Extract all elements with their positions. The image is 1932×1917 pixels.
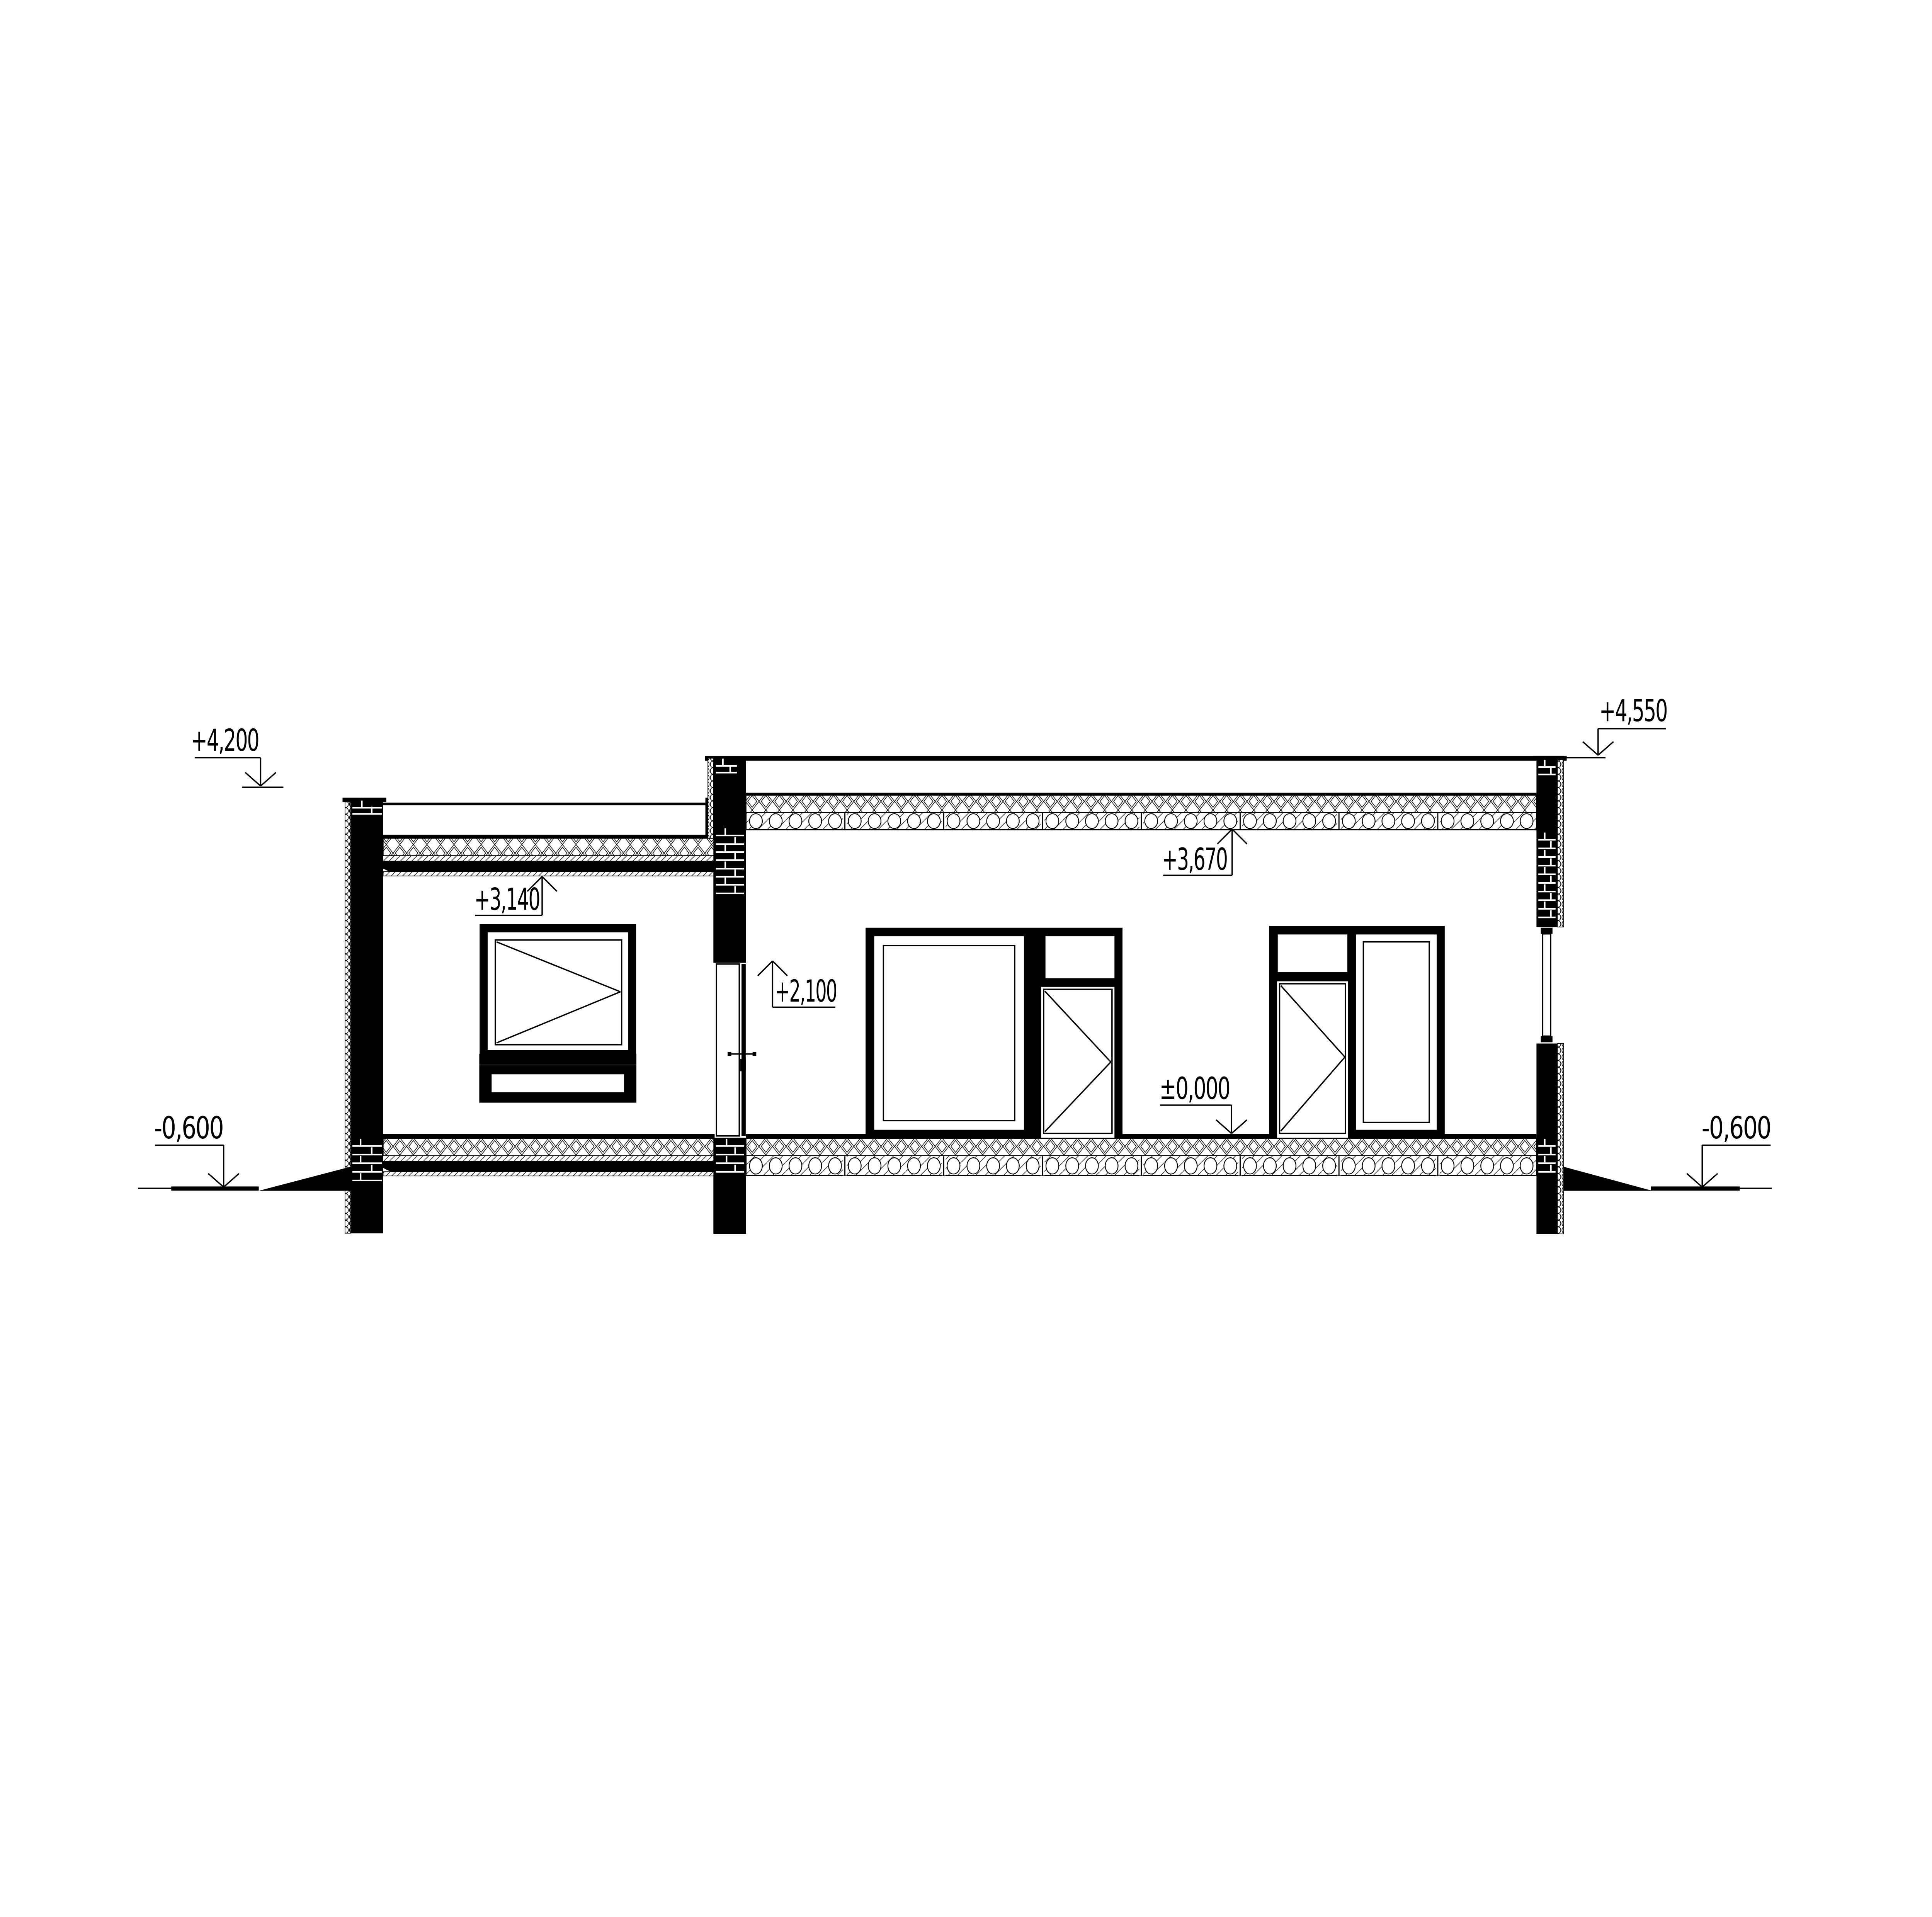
opening-b-transom — [1278, 934, 1347, 972]
brick-head-joint — [1550, 910, 1551, 917]
left-floor-soffit-hatch — [383, 1172, 715, 1176]
slab-void — [1422, 1158, 1434, 1174]
slab-void — [1165, 1158, 1177, 1174]
slab-void — [1323, 814, 1335, 828]
brick-head-joint — [735, 837, 736, 844]
left-floor-insulation-hatch — [383, 1138, 715, 1156]
slab-void — [908, 814, 920, 828]
right-wall-insulation-lower — [1558, 1044, 1564, 1234]
slab-void — [1422, 814, 1434, 828]
window-sill-block — [1541, 1036, 1553, 1042]
right-wall-insulation-upper — [1558, 759, 1564, 927]
brick-bed-joint — [1538, 873, 1556, 875]
opening-a-fixed-panel — [874, 936, 1024, 1130]
brick-bed-joint — [1538, 899, 1556, 901]
brick-bed-joint — [716, 1162, 744, 1164]
brick-bed-joint — [1538, 856, 1556, 858]
slab-void — [1481, 814, 1493, 828]
left-floor-slab-beam — [370, 1161, 724, 1172]
brick-head-joint — [1550, 859, 1551, 865]
right-roof-top-line — [705, 756, 1567, 761]
slab-void — [1461, 814, 1474, 828]
slab-void — [927, 814, 940, 828]
brick-bed-joint — [1538, 1154, 1556, 1155]
brick-bed-joint — [1538, 839, 1556, 840]
right-wall-coping — [1534, 756, 1567, 760]
slab-void — [987, 1158, 1000, 1174]
brick-bed-joint — [1538, 1145, 1556, 1147]
slab-void — [1362, 814, 1375, 828]
brick-head-joint — [724, 878, 726, 884]
grade-line-left-thick — [171, 1186, 259, 1191]
slab-void — [1145, 1158, 1158, 1174]
label-left-parapet: +4,200 — [191, 723, 259, 758]
brick-head-joint — [371, 1147, 372, 1154]
opening-b-door-bay — [1277, 981, 1348, 1138]
slab-void — [1224, 814, 1236, 828]
slab-void — [1243, 814, 1256, 828]
slab-void — [769, 814, 782, 828]
label-right-ceiling: +3,670 — [1162, 842, 1227, 877]
right-wall-masonry-lower — [1536, 1044, 1557, 1234]
brick-head-joint — [735, 1147, 736, 1154]
slab-void — [1303, 1158, 1316, 1174]
brick-head-joint — [724, 845, 726, 851]
slab-void — [809, 814, 821, 828]
brick-head-joint — [371, 1165, 372, 1171]
door-handle-knob-left — [728, 1052, 731, 1056]
brick-bed-joint — [1538, 908, 1556, 910]
slab-void — [1500, 1158, 1513, 1174]
brick-head-joint — [1544, 760, 1546, 766]
brick-head-joint — [735, 853, 736, 859]
slab-void — [750, 814, 762, 828]
slab-void — [1066, 814, 1078, 828]
slab-void — [1085, 814, 1098, 828]
slab-void — [1382, 1158, 1395, 1174]
slab-void — [987, 814, 1000, 828]
label-right-parapet: +4,550 — [1599, 694, 1667, 729]
brick-bed-joint — [1538, 774, 1556, 775]
slab-void — [769, 1158, 782, 1174]
brick-head-joint — [722, 759, 724, 765]
brick-bed-joint — [352, 1162, 382, 1164]
slab-void — [1204, 1158, 1217, 1174]
brick-bed-joint — [716, 772, 737, 773]
slab-void — [1066, 1158, 1078, 1174]
brick-head-joint — [735, 1165, 736, 1171]
slab-void — [908, 1158, 920, 1174]
left-roof-flashing-line — [350, 803, 707, 805]
left-roof-soffit-hatch — [383, 872, 715, 876]
brick-head-joint — [1550, 893, 1551, 900]
slab-void — [1481, 1158, 1493, 1174]
opening-b-sidelight-bay — [1356, 934, 1437, 1129]
brick-bed-joint — [352, 813, 382, 815]
brick-bed-joint — [352, 807, 382, 808]
slab-void — [750, 1158, 762, 1174]
brick-head-joint — [371, 807, 372, 813]
brick-head-joint — [730, 765, 731, 772]
brick-bed-joint — [1538, 917, 1556, 918]
brick-bed-joint — [716, 1154, 744, 1155]
slab-void — [1007, 814, 1019, 828]
label-ground-left: -0,600 — [154, 1111, 223, 1146]
label-ground-right: -0,600 — [1702, 1111, 1771, 1146]
slab-void — [947, 814, 960, 828]
label-left-ceiling: +3,140 — [474, 882, 540, 917]
brick-head-joint — [735, 886, 736, 893]
left-roof-screed-hatch — [366, 856, 727, 861]
left-wall-masonry — [350, 802, 383, 1233]
brick-bed-joint — [716, 1145, 744, 1147]
slab-void — [1441, 814, 1454, 828]
brick-head-joint — [1544, 885, 1546, 891]
left-floor-screed-hatch — [366, 1156, 727, 1161]
middle-wall-foundation — [713, 1138, 746, 1234]
slab-void — [1085, 1158, 1098, 1174]
slab-void — [1204, 814, 1217, 828]
slab-void — [828, 814, 841, 828]
brick-head-joint — [1550, 1165, 1551, 1171]
brick-head-joint — [724, 862, 726, 868]
slab-void — [1145, 814, 1158, 828]
slab-void — [1500, 814, 1513, 828]
brick-head-joint — [360, 1156, 361, 1163]
slab-void — [888, 814, 901, 828]
left-window-spandrel-band — [479, 1054, 636, 1065]
slab-void — [1303, 814, 1316, 828]
slab-void — [1184, 814, 1197, 828]
slab-void — [848, 814, 861, 828]
left-floor-top-line — [383, 1134, 715, 1138]
section-drawing-canvas: +4,200 +4,550 +3,140 +3,670 +2,100 ±0,00… — [0, 0, 1932, 1917]
slab-void — [1382, 814, 1395, 828]
brick-head-joint — [1550, 876, 1551, 882]
brick-bed-joint — [352, 1180, 382, 1181]
brick-head-joint — [726, 1139, 727, 1145]
left-window-lower-panel — [492, 1074, 624, 1092]
brick-bed-joint — [352, 1154, 382, 1155]
brick-bed-joint — [352, 1145, 382, 1147]
brick-head-joint — [1544, 850, 1546, 856]
slab-void — [1165, 814, 1177, 828]
brick-bed-joint — [716, 851, 744, 853]
brick-bed-joint — [1538, 766, 1556, 768]
slab-void — [848, 1158, 861, 1174]
brick-bed-joint — [1538, 891, 1556, 892]
brick-head-joint — [1544, 1156, 1546, 1163]
door-handle-knob-right — [753, 1052, 757, 1056]
opening-b — [1269, 926, 1444, 1138]
slab-void — [1362, 1158, 1375, 1174]
slab-void — [1342, 814, 1355, 828]
right-roof-insulation-hatch — [746, 795, 1537, 813]
slab-void — [1105, 814, 1118, 828]
brick-bed-joint — [716, 884, 744, 886]
brick-bed-joint — [352, 1171, 382, 1173]
slab-void — [1520, 1158, 1533, 1174]
door-lock-case — [740, 1059, 746, 1071]
slab-void — [1026, 1158, 1039, 1174]
brick-head-joint — [360, 1173, 361, 1180]
slab-void — [1046, 814, 1059, 828]
slab-void — [828, 1158, 841, 1174]
opening-a-transom — [1046, 936, 1115, 978]
slab-void — [1520, 814, 1533, 828]
brick-head-joint — [1544, 867, 1546, 874]
brick-head-joint — [1544, 1139, 1546, 1145]
brick-head-joint — [1550, 767, 1551, 774]
slab-void — [1125, 1158, 1138, 1174]
brick-head-joint — [361, 801, 362, 807]
label-floor: ±0,000 — [1160, 1071, 1230, 1106]
slab-void — [1046, 1158, 1059, 1174]
slab-void — [967, 814, 980, 828]
drawing-sheet: +4,200 +4,550 +3,140 +3,670 +2,100 ±0,00… — [0, 0, 1932, 1917]
opening-a-door-bay — [1041, 987, 1115, 1138]
brick-bed-joint — [716, 835, 744, 836]
slab-void — [1243, 1158, 1256, 1174]
slab-void — [1402, 814, 1415, 828]
slab-void — [1461, 1158, 1474, 1174]
right-wall-masonry-upper — [1536, 759, 1557, 927]
slab-void — [1264, 814, 1276, 828]
brick-bed-joint — [1538, 1162, 1556, 1164]
brick-head-joint — [724, 828, 726, 835]
slab-void — [1125, 814, 1138, 828]
brick-head-joint — [735, 869, 736, 876]
slab-void — [809, 1158, 821, 1174]
grade-line-right-thick — [1651, 1186, 1740, 1191]
left-roof-insulation-hatch — [383, 839, 715, 856]
brick-head-joint — [1550, 841, 1551, 848]
slab-void — [1283, 814, 1296, 828]
brick-bed-joint — [1538, 1171, 1556, 1173]
brick-bed-joint — [1538, 865, 1556, 866]
slab-void — [1342, 1158, 1355, 1174]
floor-assembly — [364, 1134, 1537, 1177]
slab-void — [1441, 1158, 1454, 1174]
slab-void — [967, 1158, 980, 1174]
left-wall-coping — [342, 798, 386, 802]
label-door-head: +2,100 — [775, 974, 837, 1009]
slab-void — [947, 1158, 960, 1174]
slab-void — [1007, 1158, 1019, 1174]
brick-head-joint — [726, 1156, 727, 1163]
slab-void — [789, 814, 802, 828]
brick-head-joint — [1544, 902, 1546, 908]
door-leaf-section — [742, 964, 746, 1136]
brick-head-joint — [1550, 1147, 1551, 1154]
slab-void — [1224, 1158, 1236, 1174]
brick-bed-joint — [1538, 882, 1556, 884]
right-floor-insulation-hatch — [746, 1138, 1537, 1156]
brick-bed-joint — [716, 1171, 744, 1173]
brick-bed-joint — [716, 893, 744, 894]
brick-bed-joint — [716, 868, 744, 869]
slab-void — [1026, 814, 1039, 828]
brick-bed-joint — [716, 859, 744, 861]
slab-void — [1264, 1158, 1276, 1174]
slab-void — [1184, 1158, 1197, 1174]
slab-void — [789, 1158, 802, 1174]
slab-void — [888, 1158, 901, 1174]
middle-wall-insulation-strip — [708, 758, 713, 838]
opening-a — [866, 928, 1122, 1138]
middle-wall-flashing-riser — [706, 798, 708, 838]
slab-void — [1105, 1158, 1118, 1174]
brick-bed-joint — [716, 765, 737, 767]
slab-void — [927, 1158, 940, 1174]
slab-void — [1402, 1158, 1415, 1174]
window-head-block — [1541, 928, 1553, 934]
left-roof-slab-beam — [368, 861, 727, 872]
slab-void — [1323, 1158, 1335, 1174]
brick-head-joint — [360, 1139, 361, 1145]
brick-bed-joint — [716, 843, 744, 845]
brick-bed-joint — [1538, 848, 1556, 849]
slab-void — [868, 1158, 881, 1174]
brick-head-joint — [1544, 833, 1546, 839]
slab-void — [868, 814, 881, 828]
brick-bed-joint — [716, 876, 744, 878]
slab-void — [1283, 1158, 1296, 1174]
